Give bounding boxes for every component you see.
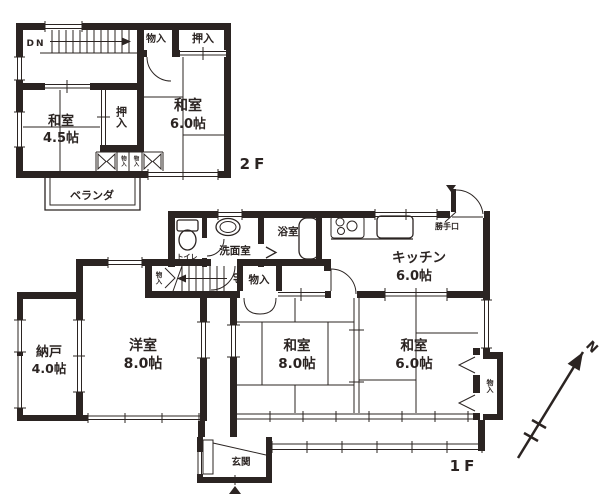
closet-mid-label: 押入 <box>115 105 128 129</box>
stairs-arrow-icon <box>122 38 131 46</box>
back-door-label: 勝手口 <box>435 221 459 231</box>
nando-size: 4.0帖 <box>32 361 67 376</box>
folding-door-icon <box>107 154 115 169</box>
stairs-down-2f <box>40 30 137 53</box>
closet-top-label: 押入 <box>192 31 214 45</box>
veranda-label: ベランダ <box>70 188 114 202</box>
small-storages-2f <box>96 152 163 171</box>
storage-east-label: 物入 <box>486 378 495 394</box>
entry-marker-icon <box>229 486 241 494</box>
bathroom-label: 浴室 <box>278 225 299 238</box>
floor2-label: 2F <box>240 155 269 173</box>
washitsu8-name: 和室 <box>284 337 311 354</box>
washitsu6-1f-name: 和室 <box>401 337 428 354</box>
washitsu45-size: 4.5帖 <box>43 130 79 146</box>
washitsu8-size: 8.0帖 <box>278 355 316 372</box>
shoe-cabinet-icon <box>203 440 213 474</box>
toilet-label: トイレ <box>177 253 198 261</box>
closet-mid-2f <box>97 90 110 145</box>
kitchen-name: キッチン <box>392 250 446 266</box>
stairs-up-label: UP <box>232 273 240 284</box>
folding-door-icon <box>153 154 161 169</box>
storage-hall-label: 物入 <box>249 273 270 286</box>
stairs-dn-label: DN <box>26 39 45 49</box>
washitsu6-2f-size: 6.0帖 <box>170 116 206 132</box>
engawa-1f <box>237 411 485 453</box>
nando-name: 納戸 <box>36 344 62 360</box>
compass-north-label: N <box>582 338 600 356</box>
storage-small-right-label: 物入 <box>133 154 141 168</box>
tatami-lines-1f <box>237 298 478 413</box>
genkan-label: 玄関 <box>231 456 250 468</box>
toilet-bowl-icon <box>179 230 196 250</box>
kitchen-sink-icon <box>377 216 413 238</box>
compass-north-arrow: N <box>518 338 600 458</box>
youshitsu-name: 洋室 <box>129 337 157 354</box>
storage-top-label: 物入 <box>146 32 166 45</box>
floorplan-page: DN 物入 押入 和室 6.0帖 押入 和室 4.5帖 物入 物入 ベランダ 2… <box>0 0 600 498</box>
washroom-label: 洗面室 <box>219 244 251 257</box>
fixtures-1f <box>177 185 483 494</box>
floorplan-svg: DN 物入 押入 和室 6.0帖 押入 和室 4.5帖 物入 物入 ベランダ 2… <box>0 0 600 498</box>
storage-small-left-label: 物入 <box>120 154 128 168</box>
washitsu45-name: 和室 <box>48 113 74 129</box>
storage-stairs-label: 物入 <box>154 270 163 285</box>
washitsu6-1f-size: 6.0帖 <box>395 355 433 372</box>
floor-plan-2f: DN 物入 押入 和室 6.0帖 押入 和室 4.5帖 物入 物入 ベランダ 2… <box>14 21 268 210</box>
folding-door-icon <box>165 268 175 288</box>
kitchen-size: 6.0帖 <box>396 268 432 284</box>
north-arrowhead-icon <box>568 352 583 371</box>
washitsu6-2f-name: 和室 <box>174 97 202 114</box>
folding-door-icon <box>98 154 106 169</box>
floor-plan-1f: トイレ 洗面室 浴室 キッチン 6.0帖 勝手口 物入 UP 物入 納戸 4.0… <box>14 185 503 494</box>
floor1-label: 1F <box>450 457 479 475</box>
folding-door-icon <box>144 154 152 169</box>
back-door-leaf <box>451 189 456 212</box>
youshitsu-size: 8.0帖 <box>124 355 163 372</box>
